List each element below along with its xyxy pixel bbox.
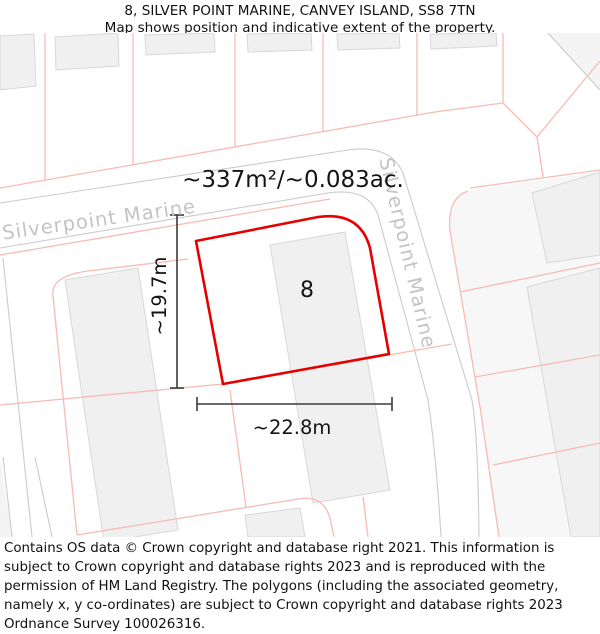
building [0, 34, 36, 90]
road-edge-west-3 [35, 457, 52, 537]
attribution-footer: Contains OS data © Crown copyright and d… [0, 539, 597, 634]
parcel-line [0, 344, 452, 405]
building [337, 33, 400, 50]
building [430, 33, 497, 49]
building [145, 33, 215, 55]
area-label: ~337m²/~0.083ac. [182, 167, 404, 193]
parcel-line [363, 497, 368, 537]
parcel-line [537, 61, 600, 137]
map-canvas: Silverpoint Marine Silverpoint Marine ~3… [0, 33, 600, 537]
building [247, 33, 312, 52]
building-plot-8 [270, 232, 390, 503]
property-map: Silverpoint Marine Silverpoint Marine ~3… [0, 33, 600, 537]
width-dimension-label: ~22.8m [253, 416, 332, 439]
parcel-line [503, 103, 543, 177]
street-label-horizontal: Silverpoint Marine [1, 195, 198, 245]
plot-number-label: 8 [300, 278, 314, 303]
parcel-line [230, 390, 246, 507]
title-block: 8, SILVER POINT MARINE, CANVEY ISLAND, S… [0, 3, 600, 37]
height-dimension-label: ~19.7m [148, 257, 171, 336]
building [55, 33, 119, 70]
building [245, 508, 305, 537]
page-title: 8, SILVER POINT MARINE, CANVEY ISLAND, S… [0, 3, 600, 20]
